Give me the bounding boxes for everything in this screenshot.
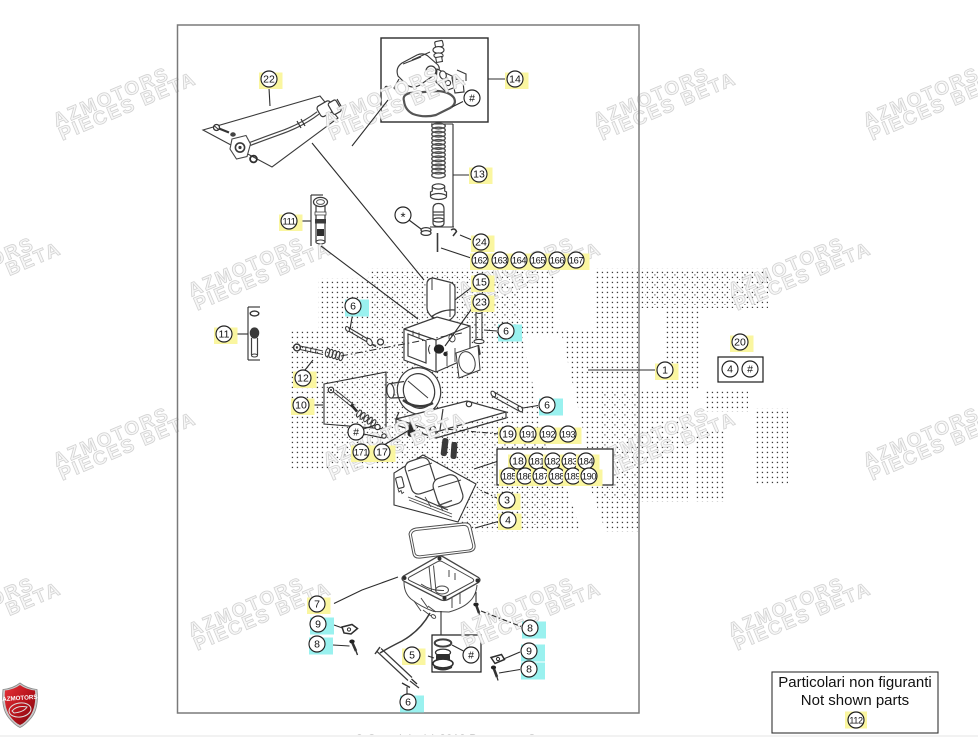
svg-text:#: # bbox=[469, 93, 475, 105]
svg-text:#: # bbox=[747, 364, 753, 376]
svg-text:183: 183 bbox=[563, 456, 578, 466]
svg-text:23: 23 bbox=[475, 297, 487, 309]
svg-text:186: 186 bbox=[518, 471, 533, 481]
svg-text:12: 12 bbox=[297, 373, 309, 385]
svg-text:6: 6 bbox=[503, 326, 509, 338]
svg-text:193: 193 bbox=[561, 429, 576, 439]
svg-text:167: 167 bbox=[569, 255, 584, 265]
svg-text:22: 22 bbox=[263, 74, 275, 86]
svg-text:24: 24 bbox=[475, 237, 487, 249]
svg-text:165: 165 bbox=[531, 255, 546, 265]
svg-text:*: * bbox=[400, 210, 405, 225]
svg-text:163: 163 bbox=[493, 255, 508, 265]
svg-text:15: 15 bbox=[475, 277, 487, 289]
svg-text:190: 190 bbox=[582, 471, 597, 481]
svg-text:112: 112 bbox=[849, 715, 863, 725]
svg-text:4: 4 bbox=[505, 515, 511, 527]
svg-text:13: 13 bbox=[473, 169, 485, 181]
svg-text:Not shown parts: Not shown parts bbox=[801, 692, 909, 709]
svg-text:182: 182 bbox=[546, 456, 561, 466]
svg-text:19: 19 bbox=[502, 429, 514, 441]
svg-text:20: 20 bbox=[734, 337, 746, 349]
svg-text:9: 9 bbox=[315, 619, 321, 631]
svg-text:18: 18 bbox=[512, 456, 524, 468]
svg-text:8: 8 bbox=[526, 664, 532, 676]
svg-text:3: 3 bbox=[504, 495, 510, 507]
svg-text:5: 5 bbox=[409, 650, 415, 662]
svg-text:4: 4 bbox=[727, 364, 733, 376]
svg-text:189: 189 bbox=[566, 471, 581, 481]
svg-text:111: 111 bbox=[283, 216, 296, 226]
svg-text:9: 9 bbox=[526, 646, 532, 658]
svg-text:7: 7 bbox=[314, 599, 320, 611]
svg-text:8: 8 bbox=[314, 639, 320, 651]
svg-text:6: 6 bbox=[544, 400, 550, 412]
svg-text:164: 164 bbox=[512, 255, 527, 265]
svg-text:192: 192 bbox=[541, 429, 556, 439]
svg-text:6: 6 bbox=[405, 697, 411, 709]
svg-text:162: 162 bbox=[473, 255, 488, 265]
svg-text:1: 1 bbox=[662, 365, 668, 377]
svg-text:10: 10 bbox=[295, 400, 307, 412]
svg-text:17: 17 bbox=[376, 447, 388, 459]
svg-text:166: 166 bbox=[550, 255, 565, 265]
svg-text:184: 184 bbox=[579, 456, 594, 466]
svg-text:191: 191 bbox=[521, 429, 536, 439]
svg-text:171: 171 bbox=[354, 447, 369, 457]
svg-text:11: 11 bbox=[219, 329, 230, 341]
svg-text:14: 14 bbox=[509, 74, 521, 86]
svg-text:Particolari non figuranti: Particolari non figuranti bbox=[778, 674, 931, 691]
svg-text:188: 188 bbox=[550, 471, 565, 481]
svg-text:8: 8 bbox=[527, 623, 533, 635]
svg-text:181: 181 bbox=[530, 456, 545, 466]
svg-text:185: 185 bbox=[502, 471, 517, 481]
svg-text:#: # bbox=[353, 427, 359, 439]
svg-text:6: 6 bbox=[350, 301, 356, 313]
svg-text:#: # bbox=[468, 650, 474, 662]
svg-text:187: 187 bbox=[534, 471, 549, 481]
